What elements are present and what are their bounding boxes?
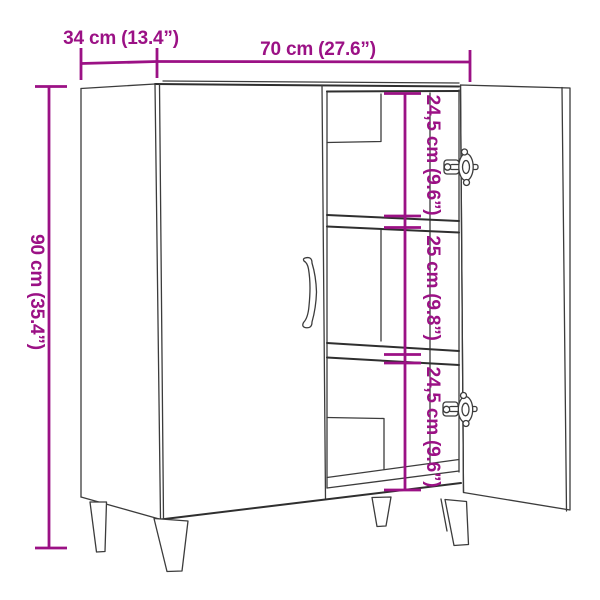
height-dimension-label: 90 cm (35.4”) [26, 234, 47, 350]
cabinet-top-front-edge [155, 84, 459, 87]
door-handle [303, 258, 317, 328]
dimension-lines [35, 48, 470, 548]
back-panel-top-step [327, 94, 381, 143]
sideboard-line-drawing: 34 cm (13.4”) 70 cm (27.6”) 90 cm (35.4”… [0, 0, 600, 600]
leg-front-left [154, 519, 188, 572]
depth-dimension-line [81, 62, 157, 64]
open-right-door [461, 85, 571, 511]
middle-shelf-upper-edge [327, 343, 459, 351]
cabinet-drawing [81, 81, 570, 572]
inner-middle-dimension-label: 25 cm (9.8”) [422, 235, 443, 340]
leg-center [372, 497, 391, 527]
back-panel-bottom-step [327, 418, 384, 470]
legs [90, 497, 469, 572]
inner-bottom-dimension-label: 24,5 cm (9.6”) [422, 367, 443, 488]
width-dimension-line [157, 62, 470, 63]
open-door-outline [461, 85, 571, 510]
cabinet-bottom-front-edge [161, 483, 462, 520]
product-dimension-diagram: 34 cm (13.4”) 70 cm (27.6”) 90 cm (35.4”… [0, 0, 600, 600]
inner-top-dimension-label: 24,5 cm (9.6”) [422, 95, 443, 216]
left-door-right-edge [322, 85, 326, 499]
leg-front-right [445, 500, 469, 546]
leg-back-left [90, 502, 107, 552]
cabinet-top-back-edge [163, 81, 459, 83]
interior-ceiling-edge [327, 91, 459, 92]
side-panel-top-edge [81, 84, 155, 89]
depth-dimension-label: 34 cm (13.4”) [63, 28, 179, 49]
width-dimension-label: 70 cm (27.6”) [260, 39, 376, 60]
